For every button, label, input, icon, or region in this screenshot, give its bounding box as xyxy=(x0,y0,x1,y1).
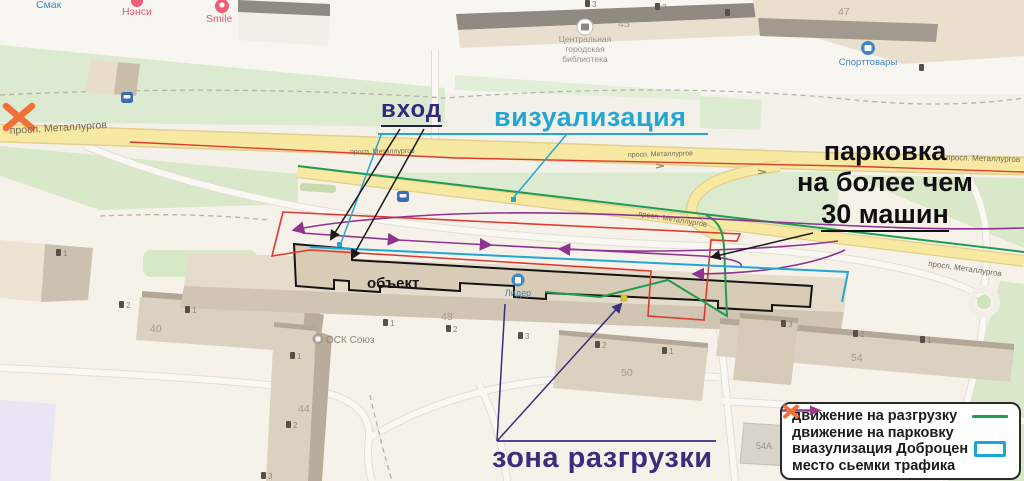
entrance-number: 2 xyxy=(602,341,607,350)
unloading-annotation: зона разгрузки xyxy=(492,443,713,473)
building-topleft xyxy=(238,12,330,46)
poi-label-sport: Спорттовары xyxy=(839,57,898,68)
visualization-dot xyxy=(511,197,516,202)
object-label: объект xyxy=(367,275,419,292)
building-number-44: 44 xyxy=(298,403,310,415)
legend-label: место сьемки трафика xyxy=(792,458,955,474)
entrance-number: 2 xyxy=(662,3,667,12)
poi-label-nensi: Нэнси xyxy=(122,6,152,18)
bus-stop-icon xyxy=(397,191,409,202)
building-small-topleft-side xyxy=(114,62,140,96)
building-number-45: 45 xyxy=(618,18,630,30)
entrance-number: 1 xyxy=(192,306,197,315)
entrance-number: 3 xyxy=(268,472,273,481)
entrance-number: 1 xyxy=(390,319,395,328)
entrance-number: 2 xyxy=(860,330,865,339)
entrance-number: 1 xyxy=(297,352,302,361)
bus-stop-icon xyxy=(121,92,133,103)
osk-glyph xyxy=(316,337,321,342)
poi-label-library: библиотека xyxy=(562,54,608,64)
building-number-47: 47 xyxy=(838,6,850,18)
legend-label: движение на парковку xyxy=(792,425,954,441)
smile-pin-dot xyxy=(219,2,224,7)
legend-row-visualization: виазулизация Доброцен xyxy=(792,441,1011,458)
entrance-number: 2 xyxy=(126,301,131,310)
sport-shop-glyph xyxy=(865,45,872,51)
building-number-40: 40 xyxy=(150,323,162,335)
loop-green-island xyxy=(977,295,991,309)
legend-label: виазулизация Доброцен xyxy=(792,441,968,457)
entrance-number: 2 xyxy=(453,325,458,334)
entrance-annotation: вход xyxy=(381,97,442,127)
map-legend: движение на разгрузку движение на парков… xyxy=(780,402,1021,480)
building-number-54: 54 xyxy=(851,352,863,364)
entrance-number: 1 xyxy=(669,347,674,356)
entrance-number: 1 xyxy=(63,249,68,258)
parking-annotation-line3: 30 машин xyxy=(775,199,995,230)
poi-label-lider: Лидер xyxy=(505,288,531,298)
parking-annotation-line2: на более чем xyxy=(775,167,995,198)
entrance-number: 3 xyxy=(788,320,793,329)
entrance-number: 3 xyxy=(525,332,530,341)
poi-label-osk: ОСК Союз xyxy=(326,335,375,346)
poi-label-library: Центральная xyxy=(559,34,612,44)
entrance-number: 1 xyxy=(927,336,932,345)
legend-row-unloading: движение на разгрузку xyxy=(792,408,1011,425)
entrance-number: 2 xyxy=(293,421,298,430)
unloading-point-marker xyxy=(621,295,627,301)
building-number-54a: 54A xyxy=(756,441,772,451)
visualization-annotation: визуализация xyxy=(494,103,686,131)
building-number-50: 50 xyxy=(621,367,633,379)
entrance-number: 1 xyxy=(732,9,737,18)
annotated-map-plan: 1 2 1 1 2 3 1 2 3 2 1 3 2 1 3 2 1 просп.… xyxy=(0,0,1024,481)
blue-rect-swatch-icon xyxy=(969,441,1011,457)
lider-shop-glyph xyxy=(515,277,521,284)
entrance-number: 3 xyxy=(592,0,597,9)
visualization-dot xyxy=(337,242,342,247)
building-left-cluster xyxy=(0,240,45,302)
legend-row-parking: движение на парковку xyxy=(792,425,1011,442)
library-book-glyph xyxy=(581,24,589,31)
green-line-swatch-icon xyxy=(969,415,1011,418)
poi-label-smak: Смак xyxy=(36,0,62,11)
parking-annotation: парковка на более чем 30 машин xyxy=(775,136,995,230)
poi-label-library: городская xyxy=(565,44,605,54)
building-number-48: 48 xyxy=(441,311,453,323)
parking-annotation-line1: парковка xyxy=(775,136,995,167)
legend-row-survey: место сьемки трафика xyxy=(792,458,1011,475)
poi-label-smile: Smile xyxy=(206,13,232,25)
